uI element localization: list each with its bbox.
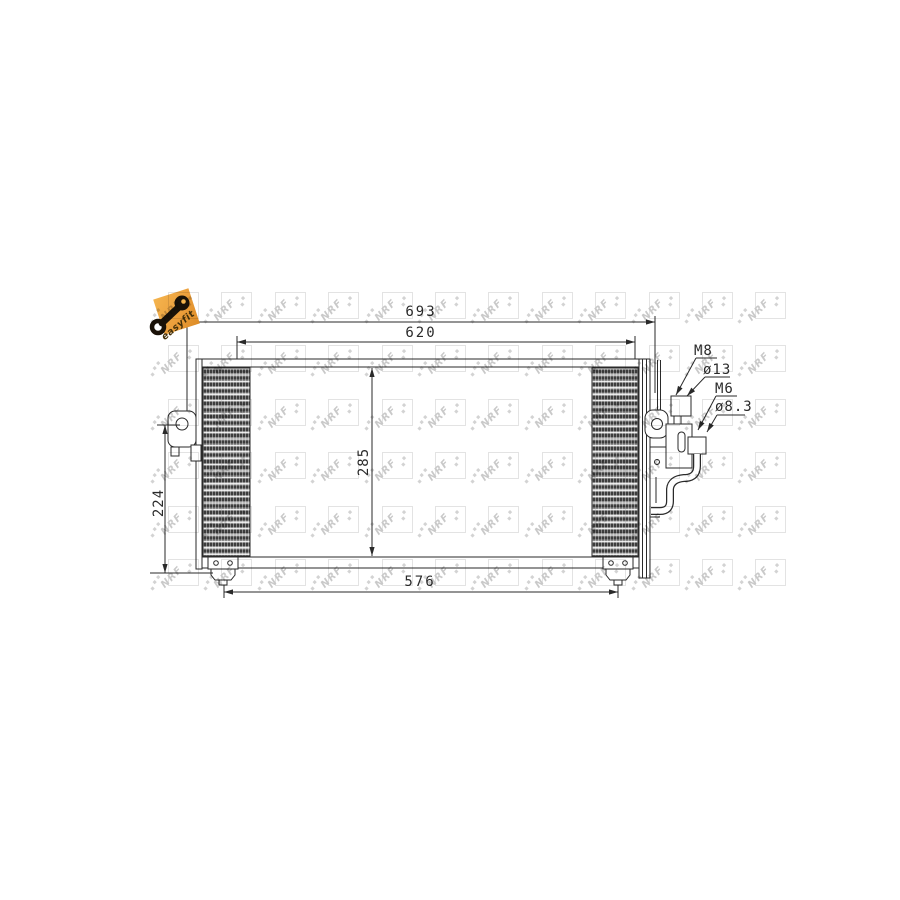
left-mount-bracket — [168, 411, 201, 461]
easyfit-logo: easyfit — [145, 286, 207, 344]
drawing-linework — [0, 0, 900, 900]
wrench-icon — [145, 286, 207, 344]
dimension-mount-width: 576 — [392, 574, 448, 590]
fitting-lower-thread: M6 — [715, 381, 734, 397]
fitting-lower-diameter: ø8.3 — [715, 399, 753, 415]
bottom-left-foot — [208, 557, 238, 585]
dimension-overall-width: 693 — [393, 304, 449, 320]
dimension-core-height: 285 — [356, 442, 372, 482]
right-connection-assembly — [645, 360, 706, 517]
fitting-upper-diameter: ø13 — [703, 362, 731, 378]
bottom-right-foot — [603, 557, 633, 585]
condenser-body — [196, 359, 650, 578]
condenser-diagram: 693 620 285 224 576 M8 ø13 M6 ø8.3 easyf… — [0, 0, 900, 900]
dimension-side-height: 224 — [151, 483, 167, 523]
dimension-upper-width: 620 — [393, 325, 449, 341]
fitting-upper-thread: M8 — [694, 343, 713, 359]
